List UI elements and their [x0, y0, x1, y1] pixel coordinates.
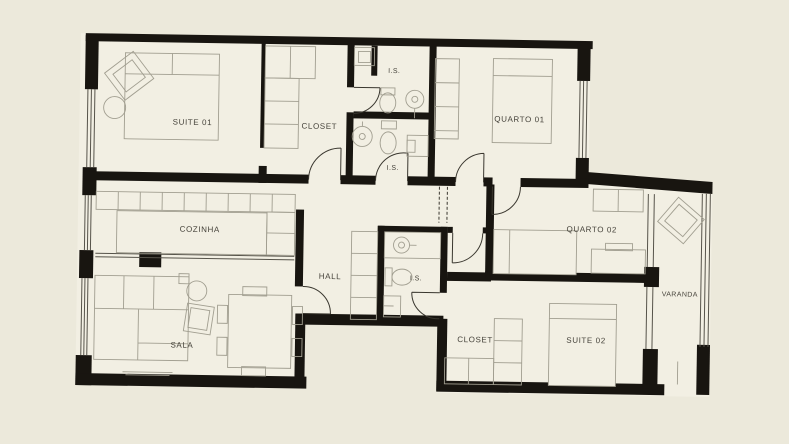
- bed-suite01-icon: [124, 53, 219, 140]
- wall-varanda-chunk1: [644, 267, 659, 287]
- wall-varanda-chunk2: [642, 349, 658, 389]
- wall-vestibule: [447, 272, 491, 282]
- bed-quarto02-icon: [493, 230, 577, 275]
- label-hall: HALL: [319, 272, 342, 281]
- wall-varanda-corner: [696, 345, 710, 395]
- label-is-hall: I.S.: [410, 275, 422, 282]
- bed-quarto01-icon: [492, 59, 552, 144]
- label-closet-top: CLOSET: [302, 122, 338, 132]
- wall-mid-e: [520, 178, 588, 188]
- label-suite-01: SUITE 01: [173, 117, 213, 127]
- wall-vest-a: [448, 227, 453, 233]
- wall-is-partition: [354, 111, 433, 119]
- label-sala: SALA: [170, 340, 193, 349]
- label-is-top: I.S.: [388, 68, 400, 75]
- label-quarto-02: QUARTO 02: [566, 225, 617, 235]
- label-closet-bottom: CLOSET: [457, 335, 493, 345]
- wall-cozinha-right: [295, 209, 304, 286]
- label-suite-02: SUITE 02: [566, 336, 606, 346]
- wall-q1-right-top: [577, 43, 591, 81]
- label-varanda: VARANDA: [662, 291, 698, 299]
- wall-closet-stub: [258, 166, 266, 183]
- floor-plan-canvas: SUITE 01 CLOSET I.S. I.S. QUARTO 01 COZI…: [0, 0, 789, 444]
- label-cozinha: COZINHA: [180, 225, 220, 235]
- wall-closet-is-b: [346, 112, 354, 180]
- label-is-mid: I.S.: [387, 165, 399, 172]
- wall-hall-bottom: [295, 313, 443, 326]
- floor-plan: SUITE 01 CLOSET I.S. I.S. QUARTO 01 COZI…: [0, 0, 789, 444]
- wall-left-top: [85, 35, 99, 89]
- wall-closet-left: [436, 319, 447, 391]
- bed-suite02-icon: [548, 303, 616, 386]
- wall-closet-is-a: [347, 43, 355, 87]
- label-quarto-01: QUARTO 01: [494, 115, 545, 125]
- wall-left-chunk2: [79, 250, 93, 278]
